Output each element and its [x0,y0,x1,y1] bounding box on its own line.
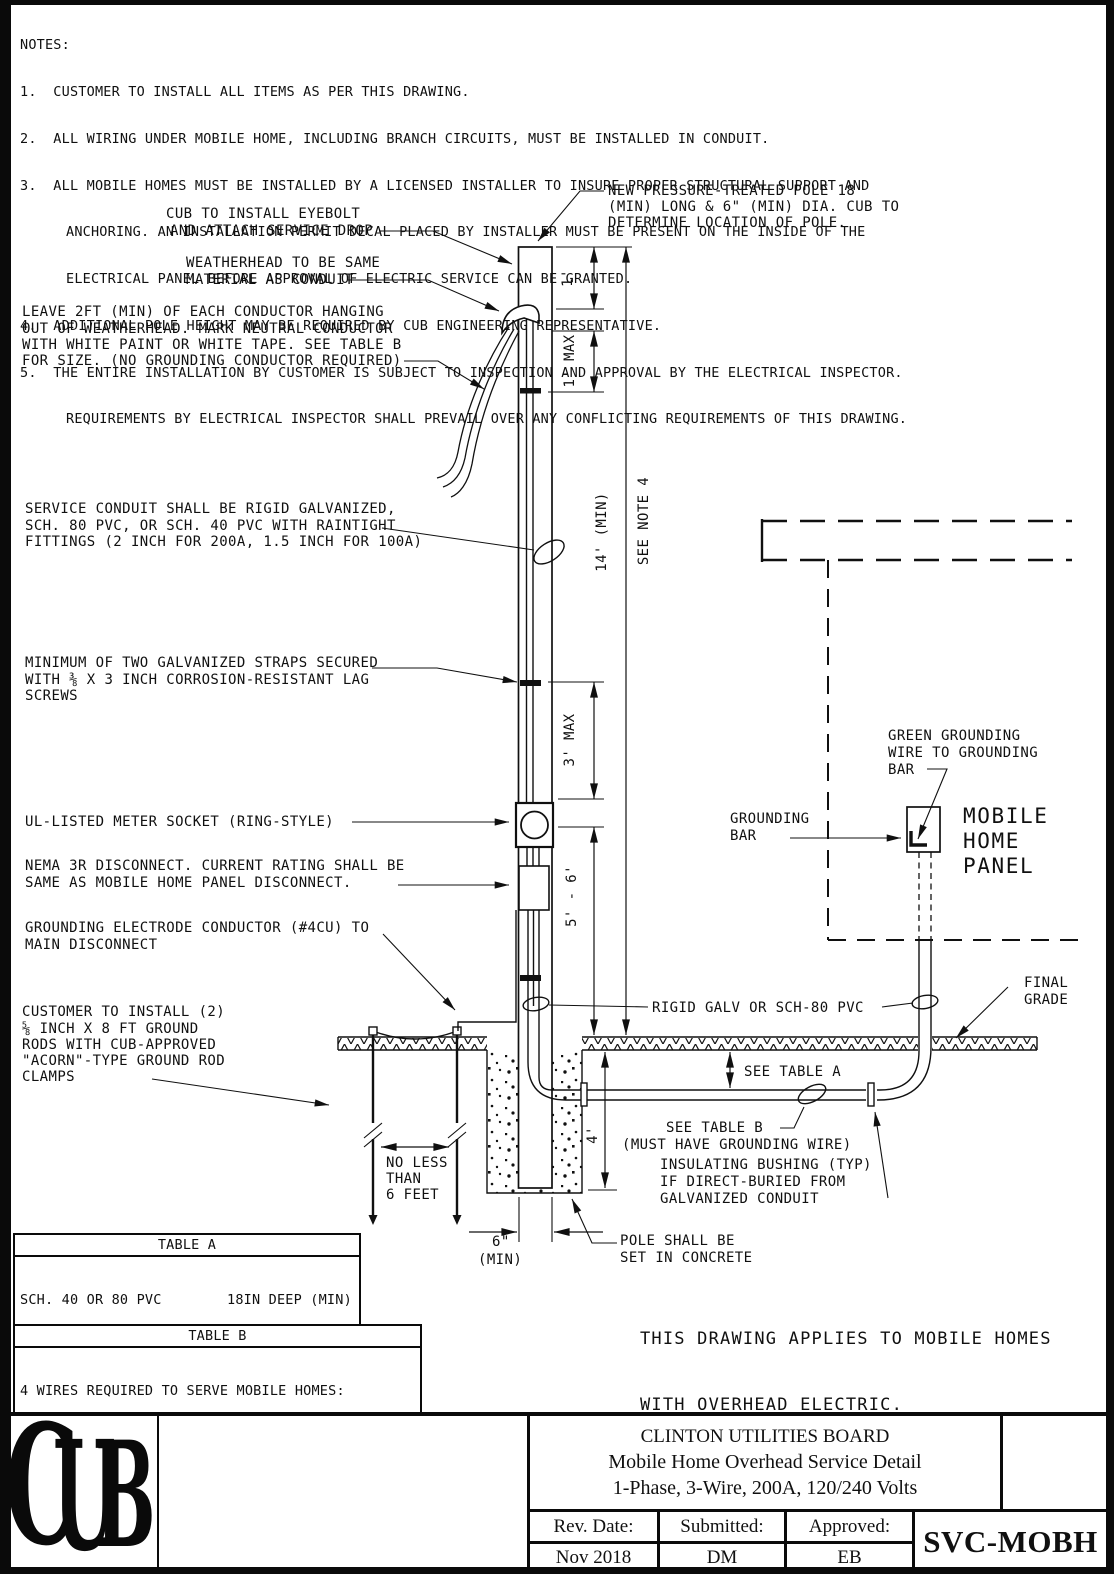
note-line: ELECTRICAL PANEL BEFORE APPROVAL OF ELEC… [20,272,907,288]
drawing-spec: 1-Phase, 3-Wire, 200A, 120/240 Volts [613,1475,918,1501]
submitted-label: Submitted: [660,1512,784,1541]
notes-header: NOTES: [20,38,907,54]
label-straps: MINIMUM OF TWO GALVANIZED STRAPS SECURED [25,655,378,671]
svg-text:SCREWS: SCREWS [25,688,78,704]
svg-text:"ACORN"-TYPE GROUND ROD: "ACORN"-TYPE GROUND ROD [22,1053,225,1069]
company-name: CLINTON UTILITIES BOARD [641,1424,890,1449]
dim-4ft: 4' [585,1126,601,1144]
svg-text:(MIN): (MIN) [478,1252,522,1268]
note-line: ANCHORING. AN INSTALLATION PERMIT DECAL … [20,225,907,241]
svg-text:THAN: THAN [386,1171,421,1187]
table-a-title: TABLE A [15,1235,359,1257]
label-see-table-a: SEE TABLE A [744,1064,841,1080]
mobile-home-panel-box [907,807,940,852]
note-line: 2. ALL WIRING UNDER MOBILE HOME, INCLUDI… [20,132,907,148]
submitted-value: DM [660,1544,784,1572]
svg-text:BAR: BAR [730,828,757,844]
table-row: SCH. 40 OR 80 PVC 18IN DEEP (MIN) [20,1292,354,1308]
notes-block: NOTES: 1. CUSTOMER TO INSTALL ALL ITEMS … [20,7,907,459]
svg-text:CLAMPS: CLAMPS [22,1069,75,1085]
nema-3r-disconnect [519,866,549,910]
label-pole-concrete: POLE SHALL BE [620,1233,735,1249]
table-row: 4 WIRES REQUIRED TO SERVE MOBILE HOMES: [20,1383,415,1399]
rev-date-label: Rev. Date: [530,1512,657,1541]
label-no-less: NO LESS [386,1155,448,1171]
label-nema: NEMA 3R DISCONNECT. CURRENT RATING SHALL… [25,858,405,874]
note-line: 4. ADDITIONAL POLE HEIGHT MAY BE REQUIRE… [20,319,907,335]
dim-3ft-max: 3' MAX [562,713,578,766]
svg-text:SCH. 80 PVC, OR SCH. 40 PVC WI: SCH. 80 PVC, OR SCH. 40 PVC WITH RAINTIG… [25,518,396,534]
label-gec: GROUNDING ELECTRODE CONDUCTOR (#4CU) TO [25,920,369,936]
cub-logo: C U B [11,1419,157,1569]
svg-text:SET IN CONCRETE: SET IN CONCRETE [620,1250,752,1266]
drawing-title: Mobile Home Overhead Service Detail [608,1449,921,1475]
label-green-wire: GREEN GROUNDING [888,728,1020,744]
svg-text:⅝ INCH X 8 FT GROUND: ⅝ INCH X 8 FT GROUND [22,1021,199,1037]
svg-text:MAIN DISCONNECT: MAIN DISCONNECT [25,937,158,953]
panel-conduit-dashed [919,852,931,940]
svg-text:RODS WITH CUB-APPROVED: RODS WITH CUB-APPROVED [22,1037,216,1053]
logo-letter-b: B [95,1419,156,1569]
svg-text:SAME AS MOBILE HOME PANEL DISC: SAME AS MOBILE HOME PANEL DISCONNECT. [25,875,352,891]
svg-text:HOME: HOME [963,829,1020,853]
label-ground-rods: CUSTOMER TO INSTALL (2) [22,1004,225,1020]
dim-5-6ft: 5' - 6' [564,865,580,927]
drawing-number: SVC-MOBH [915,1512,1106,1572]
svg-text:IF DIRECT-BURIED FROM: IF DIRECT-BURIED FROM [660,1174,845,1190]
svg-text:WITH ⅜ X 3 INCH CORROSION-RESI: WITH ⅜ X 3 INCH CORROSION-RESISTANT LAG [25,672,369,688]
label-insulating-bushing: INSULATING BUSHING (TYP) [660,1157,872,1173]
svg-text:(MUST HAVE GROUNDING WIRE): (MUST HAVE GROUNDING WIRE) [622,1137,852,1153]
label-rigid-galv: RIGID GALV OR SCH-80 PVC [652,1000,864,1016]
title-block: C U B CLINTON UTILITIES BOARD Mobile Hom… [0,1412,1114,1572]
table-b-title: TABLE B [15,1326,420,1348]
svg-text:GRADE: GRADE [1024,992,1068,1008]
approved-value: EB [787,1544,912,1572]
drawing-sheet: .ln{stroke:#101010;stroke-width:1.4;fill… [0,0,1114,1574]
svg-text:GALVANIZED CONDUIT: GALVANIZED CONDUIT [660,1191,819,1207]
dim-see-note-4: SEE NOTE 4 [636,477,652,565]
insulating-bushing [581,1083,587,1106]
svg-text:PANEL: PANEL [963,854,1034,878]
grounding-electrode-conductor [458,910,516,1031]
note-line: 3. ALL MOBILE HOMES MUST BE INSTALLED BY… [20,179,907,195]
label-grounding-bar: GROUNDING [730,811,809,827]
title-block-heading: CLINTON UTILITIES BOARD Mobile Home Over… [530,1416,1000,1509]
label-mobile-home-panel: MOBILE [963,804,1048,828]
label-final-grade: FINAL [1024,975,1068,991]
rev-date-value: Nov 2018 [530,1544,657,1572]
label-service-conduit: SERVICE CONDUIT SHALL BE RIGID GALVANIZE… [25,501,396,517]
svg-text:FITTINGS (2 INCH FOR 200A, 1.5: FITTINGS (2 INCH FOR 200A, 1.5 INCH FOR … [25,534,422,550]
final-grade-line [338,1037,1037,1050]
label-meter: UL-LISTED METER SOCKET (RING-STYLE) [25,814,334,830]
note-line: REQUIREMENTS BY ELECTRICAL INSPECTOR SHA… [20,412,907,428]
note-line: 5. THE ENTIRE INSTALLATION BY CUSTOMER I… [20,366,907,382]
label-see-table-b: SEE TABLE B [666,1120,763,1136]
insulating-bushing [868,1083,874,1106]
dim-6in: 6" [492,1234,510,1250]
dim-14ft-min: 14' (MIN) [594,492,610,571]
note-line: 1. CUSTOMER TO INSTALL ALL ITEMS AS PER … [20,85,907,101]
meter-socket [516,803,553,847]
svg-text:6 FEET: 6 FEET [386,1187,439,1203]
svg-text:BAR: BAR [888,762,915,778]
svg-text:WIRE TO GROUNDING: WIRE TO GROUNDING [888,745,1038,761]
approved-label: Approved: [787,1512,912,1541]
